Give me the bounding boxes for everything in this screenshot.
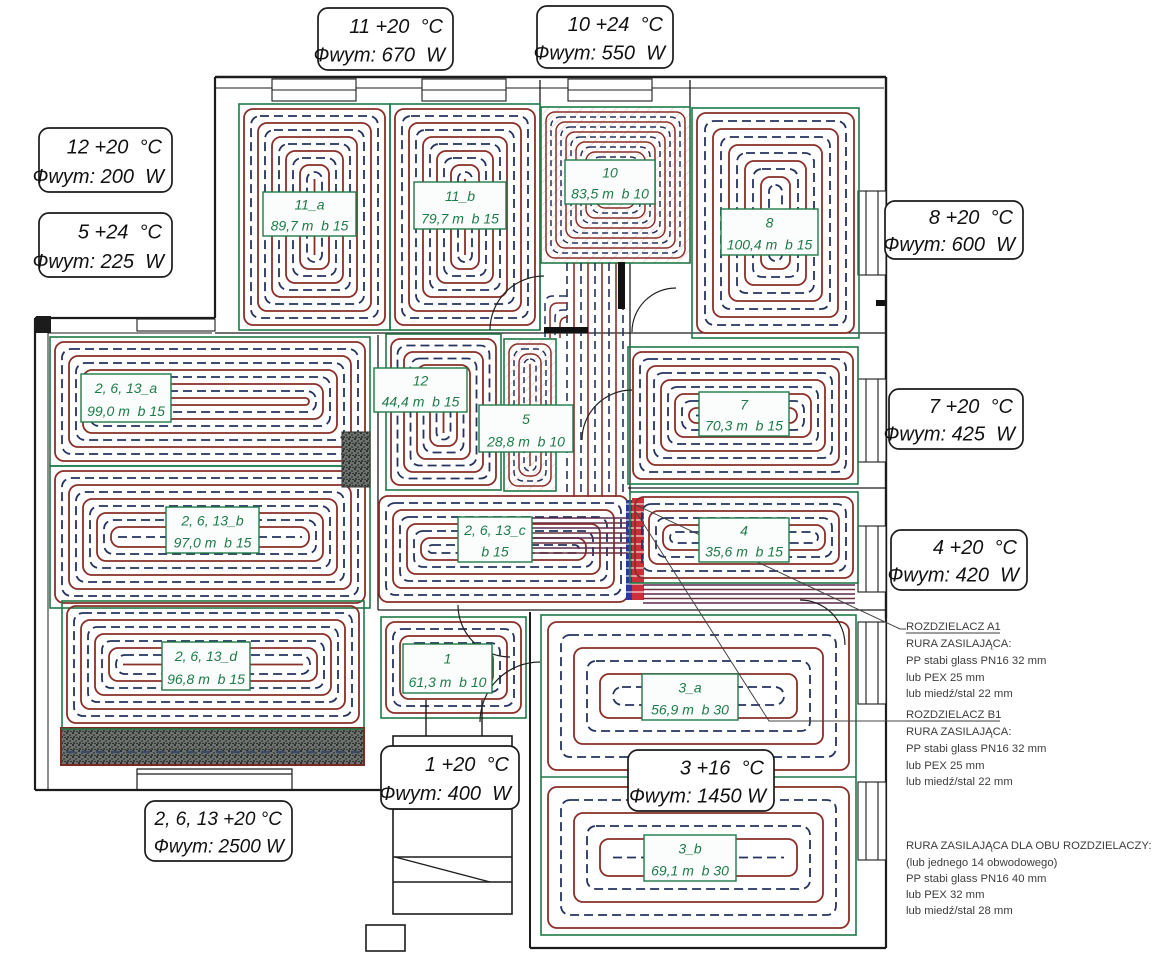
svg-text:3_b: 3_b [678,840,702,856]
svg-text:Фwym: 2500 W: Фwym: 2500 W [154,837,286,858]
svg-text:Фwym: 425 W: Фwym: 425 W [884,424,1018,446]
svg-text:PP stabi glass PN16 32 mm: PP stabi glass PN16 32 mm [906,655,1046,667]
svg-text:2, 6, 13 +20 °C: 2, 6, 13 +20 °C [154,809,283,830]
svg-text:lub miedź/stal 22 mm: lub miedź/stal 22 mm [906,776,1013,788]
svg-text:Фwym: 225 W: Фwym: 225 W [33,251,167,273]
svg-text:ROZDZIELACZ B1: ROZDZIELACZ B1 [906,709,1001,721]
svg-text:4 +20 °C: 4 +20 °C [933,537,1018,559]
svg-text:44,4 m b 15: 44,4 m b 15 [382,394,460,410]
svg-text:2, 6, 13_d: 2, 6, 13_d [174,648,238,664]
svg-text:1 +20 °C: 1 +20 °C [425,754,510,776]
svg-text:12: 12 [413,373,429,389]
svg-text:5 +24 °C: 5 +24 °C [78,222,163,244]
svg-text:83,5 m b 10: 83,5 m b 10 [571,186,649,202]
svg-text:11 +20 °C: 11 +20 °C [349,16,443,38]
svg-text:2, 6, 13_c: 2, 6, 13_c [463,522,526,538]
svg-text:1: 1 [444,651,452,667]
svg-text:7 +20 °C: 7 +20 °C [929,396,1014,418]
svg-text:lub PEX 32 mm: lub PEX 32 mm [906,889,984,901]
svg-text:10: 10 [602,165,618,181]
svg-text:3_a: 3_a [678,679,702,695]
svg-text:56,9 m b 30: 56,9 m b 30 [651,701,729,717]
svg-text:lub PEX 25 mm: lub PEX 25 mm [906,760,984,772]
svg-text:lub PEX 25 mm: lub PEX 25 mm [906,672,984,684]
svg-text:70,3 m b 15: 70,3 m b 15 [705,418,783,434]
svg-text:lub miedź/stal 28 mm: lub miedź/stal 28 mm [906,905,1013,917]
svg-text:11_a: 11_a [294,197,324,213]
svg-text:lub miedź/stal 22 mm: lub miedź/stal 22 mm [906,688,1013,700]
svg-text:100,4 m b 15: 100,4 m b 15 [727,236,813,252]
svg-text:RURA ZASILAJĄCA:: RURA ZASILAJĄCA: [906,638,1011,650]
svg-text:69,1 m b 30: 69,1 m b 30 [651,862,729,878]
svg-text:79,7 m b 15: 79,7 m b 15 [421,210,499,226]
svg-text:RURA ZASILAJĄCA DLA OBU ROZDZI: RURA ZASILAJĄCA DLA OBU ROZDZIELACZY: [906,840,1151,852]
svg-text:8 +20 °C: 8 +20 °C [929,207,1014,229]
svg-text:PP stabi glass PN16 40 mm: PP stabi glass PN16 40 mm [906,873,1046,885]
svg-text:5: 5 [522,411,530,427]
svg-text:97,0 m b 15: 97,0 m b 15 [174,534,252,550]
svg-text:Фwym: 1450 W: Фwym: 1450 W [629,785,768,807]
svg-text:RURA ZASILAJĄCA:: RURA ZASILAJĄCA: [906,726,1011,738]
svg-text:99,0 m b 15: 99,0 m b 15 [87,403,165,419]
svg-text:2, 6, 13_b: 2, 6, 13_b [180,512,243,528]
svg-text:35,6 m b 15: 35,6 m b 15 [705,544,783,560]
svg-text:11_b: 11_b [445,188,475,204]
svg-text:89,7 m b 15: 89,7 m b 15 [271,218,349,234]
svg-text:Фwym: 400 W: Фwym: 400 W [380,783,514,805]
svg-text:ROZDZIELACZ A1: ROZDZIELACZ A1 [906,621,1001,633]
svg-text:Фwym: 200 W: Фwym: 200 W [33,166,167,188]
svg-text:7: 7 [740,397,749,413]
svg-text:Фwym: 670 W: Фwym: 670 W [314,44,448,66]
svg-text:3 +16 °C: 3 +16 °C [680,757,765,779]
svg-text:2, 6, 13_a: 2, 6, 13_a [94,380,157,396]
svg-text:Фwym: 550 W: Фwym: 550 W [534,42,668,64]
svg-text:28,8 m b 10: 28,8 m b 10 [486,433,565,449]
svg-text:12 +20 °C: 12 +20 °C [67,137,163,159]
svg-text:PP stabi glass PN16 32 mm: PP stabi glass PN16 32 mm [906,743,1046,755]
svg-text:4: 4 [740,523,748,539]
svg-text:96,8 m b 15: 96,8 m b 15 [167,671,245,687]
svg-text:b 15: b 15 [481,544,508,560]
svg-text:Фwym: 420 W: Фwym: 420 W [888,565,1022,587]
svg-text:8: 8 [766,214,774,230]
svg-text:10 +24 °C: 10 +24 °C [568,14,664,36]
svg-text:Фwym: 600 W: Фwym: 600 W [884,234,1018,256]
svg-text:61,3 m b 10: 61,3 m b 10 [409,674,487,690]
svg-text:(lub jednego 14 obwodowego): (lub jednego 14 obwodowego) [906,857,1058,869]
